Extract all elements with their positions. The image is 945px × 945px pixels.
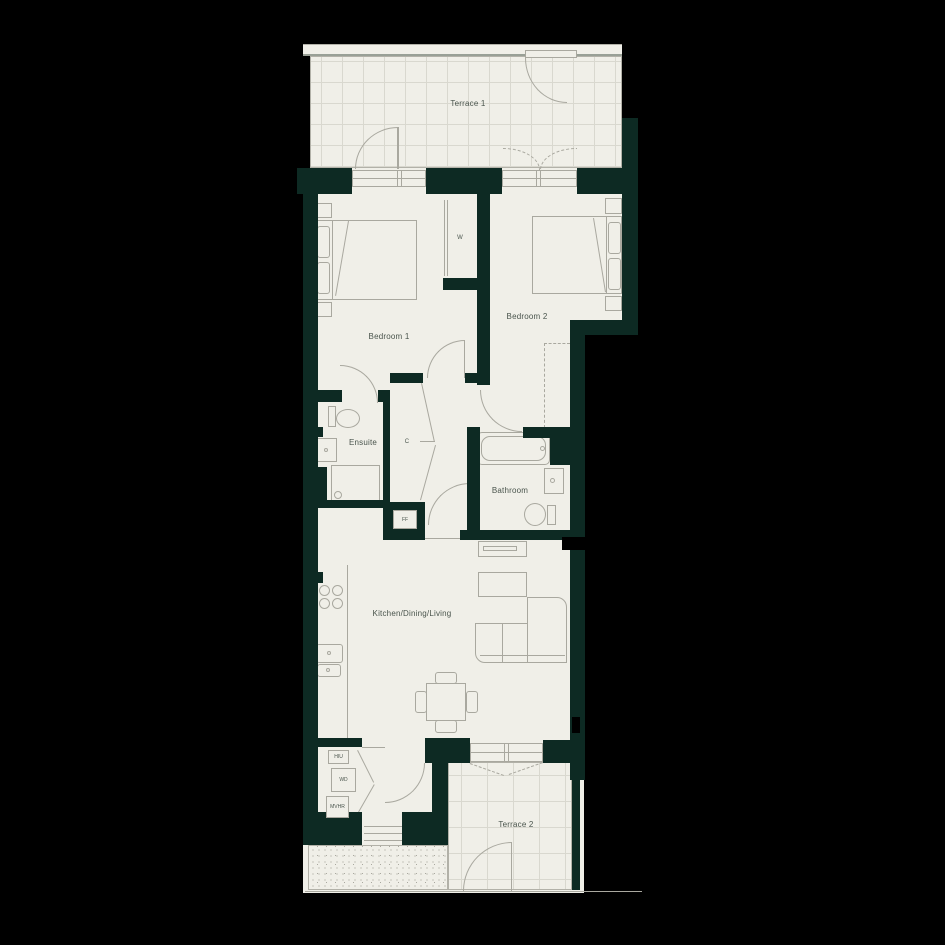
room-label-bedroom2: Bedroom 2 — [507, 313, 548, 321]
stipple-paving — [308, 845, 448, 890]
wall — [523, 427, 553, 438]
toilet-cistern-icon — [547, 505, 556, 525]
entrance-step-line — [364, 826, 402, 827]
wall — [570, 335, 585, 780]
sofa-cushion-line — [502, 624, 503, 662]
toilet-bowl-icon — [336, 409, 360, 428]
chair-icon — [415, 691, 427, 713]
basin-drain-icon — [324, 448, 328, 452]
coffee-table-icon — [478, 572, 527, 597]
hob-ring-icon — [332, 585, 343, 596]
hob-ring-icon — [319, 598, 330, 609]
room-label-bedroom1: Bedroom 1 — [369, 333, 410, 341]
room-label-cupboard: C — [405, 439, 410, 445]
wall — [303, 390, 342, 402]
wall — [465, 373, 487, 383]
wall — [432, 762, 448, 822]
dining-table-icon — [426, 683, 466, 721]
sink-drain-icon — [326, 668, 330, 672]
window-tick — [536, 171, 537, 186]
shower-drain-icon — [334, 491, 342, 499]
door-leaf — [511, 842, 512, 891]
pillow-icon — [317, 226, 330, 258]
tv-icon — [483, 546, 517, 551]
wall — [467, 427, 480, 540]
wall — [622, 118, 638, 168]
site-baseline — [305, 891, 642, 892]
entrance-step-line — [364, 840, 402, 841]
sink-drain-icon — [327, 651, 331, 655]
floor-plan: FF HIU WD MVHR Terrace 1 Bedroom 1 W Bed… — [0, 0, 945, 945]
wall — [443, 278, 477, 290]
window-mid-line — [353, 178, 425, 179]
bath-inner-line — [481, 436, 546, 461]
chair-icon — [435, 720, 457, 733]
wardrobe-zone-dashed — [544, 343, 570, 428]
wall — [622, 194, 638, 335]
mvhr-label: MVHR — [330, 804, 345, 810]
wardrobe-rail-line — [447, 200, 448, 276]
hob-ring-icon — [332, 598, 343, 609]
pillow-icon — [608, 222, 621, 254]
hiu-label: HIU — [334, 754, 343, 760]
outline-notch — [562, 537, 585, 550]
pillow-icon — [608, 258, 621, 290]
ff-box: FF — [393, 510, 417, 529]
window-tick — [401, 171, 402, 186]
wall — [550, 427, 570, 465]
cupboard-door-tick — [420, 441, 435, 442]
wall — [577, 168, 638, 194]
wall — [390, 373, 423, 383]
wardrobe-rail-line — [444, 200, 445, 276]
wall — [313, 427, 323, 437]
wd-box: WD — [331, 768, 356, 792]
ff-label: FF — [402, 517, 408, 523]
hob-ring-icon — [319, 585, 330, 596]
wall — [570, 320, 638, 335]
sofa-back-line — [480, 655, 565, 656]
wall — [383, 390, 390, 503]
toilet-bowl-icon — [524, 503, 546, 526]
door-leaf — [397, 127, 399, 169]
wd-label: WD — [339, 777, 347, 783]
wall — [425, 738, 470, 763]
wall — [477, 194, 490, 385]
wall — [313, 467, 327, 503]
window-tick — [504, 744, 505, 761]
wall — [315, 738, 362, 747]
room-label-ensuite: Ensuite — [349, 439, 377, 447]
door-leaf — [525, 50, 577, 58]
room-label-kitchen: Kitchen/Dining/Living — [373, 610, 452, 618]
nightstand-icon — [605, 296, 622, 311]
wall — [543, 740, 572, 763]
chair-icon — [466, 691, 478, 713]
room-label-bathroom: Bathroom — [492, 487, 528, 495]
mvhr-box: MVHR — [326, 796, 349, 818]
bed1-headboard-line — [332, 220, 333, 300]
window-mid-line — [471, 752, 542, 753]
room-label-terrace2: Terrace 2 — [498, 821, 533, 829]
window-tick — [397, 171, 398, 186]
wall — [426, 168, 502, 194]
chair-icon — [435, 672, 457, 684]
wall — [313, 572, 323, 583]
window-tick — [540, 171, 541, 186]
sofa-chaise-icon — [527, 597, 567, 663]
toilet-cistern-icon — [328, 406, 336, 427]
window-tick — [508, 744, 509, 761]
hiu-box: HIU — [328, 750, 349, 764]
room-label-terrace1: Terrace 1 — [450, 100, 485, 108]
bath-tap-icon — [540, 446, 545, 451]
kitchen-counter-edge — [347, 565, 348, 738]
room-label-wardrobe: W — [457, 235, 463, 241]
bed2-headboard-line — [606, 216, 607, 294]
hall-wall-line — [362, 747, 385, 748]
pillow-icon — [317, 262, 330, 294]
nightstand-icon — [605, 198, 622, 214]
entrance-step-line — [364, 833, 402, 834]
outline-notch — [572, 717, 580, 733]
basin-drain-icon — [550, 478, 555, 483]
wall — [572, 780, 580, 890]
